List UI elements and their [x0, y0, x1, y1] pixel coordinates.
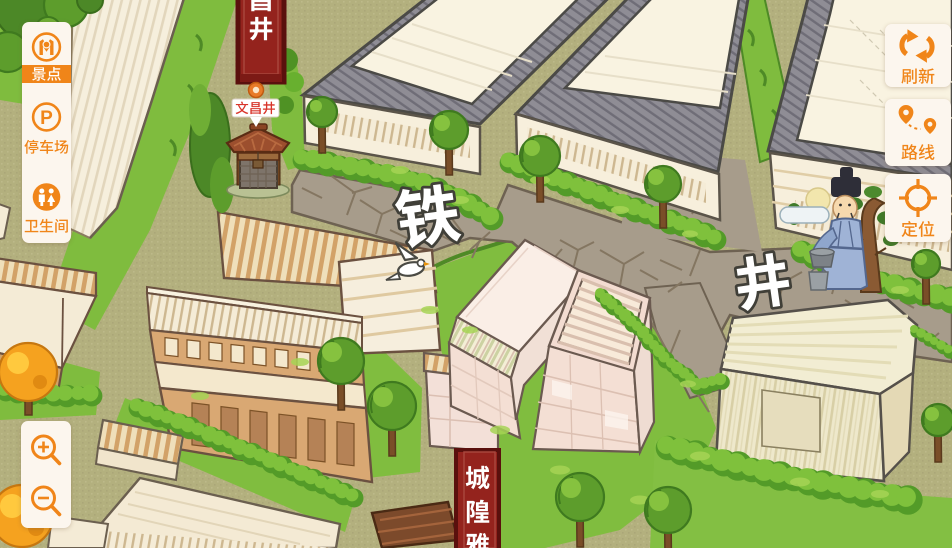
svg-text:P: P [40, 108, 53, 129]
